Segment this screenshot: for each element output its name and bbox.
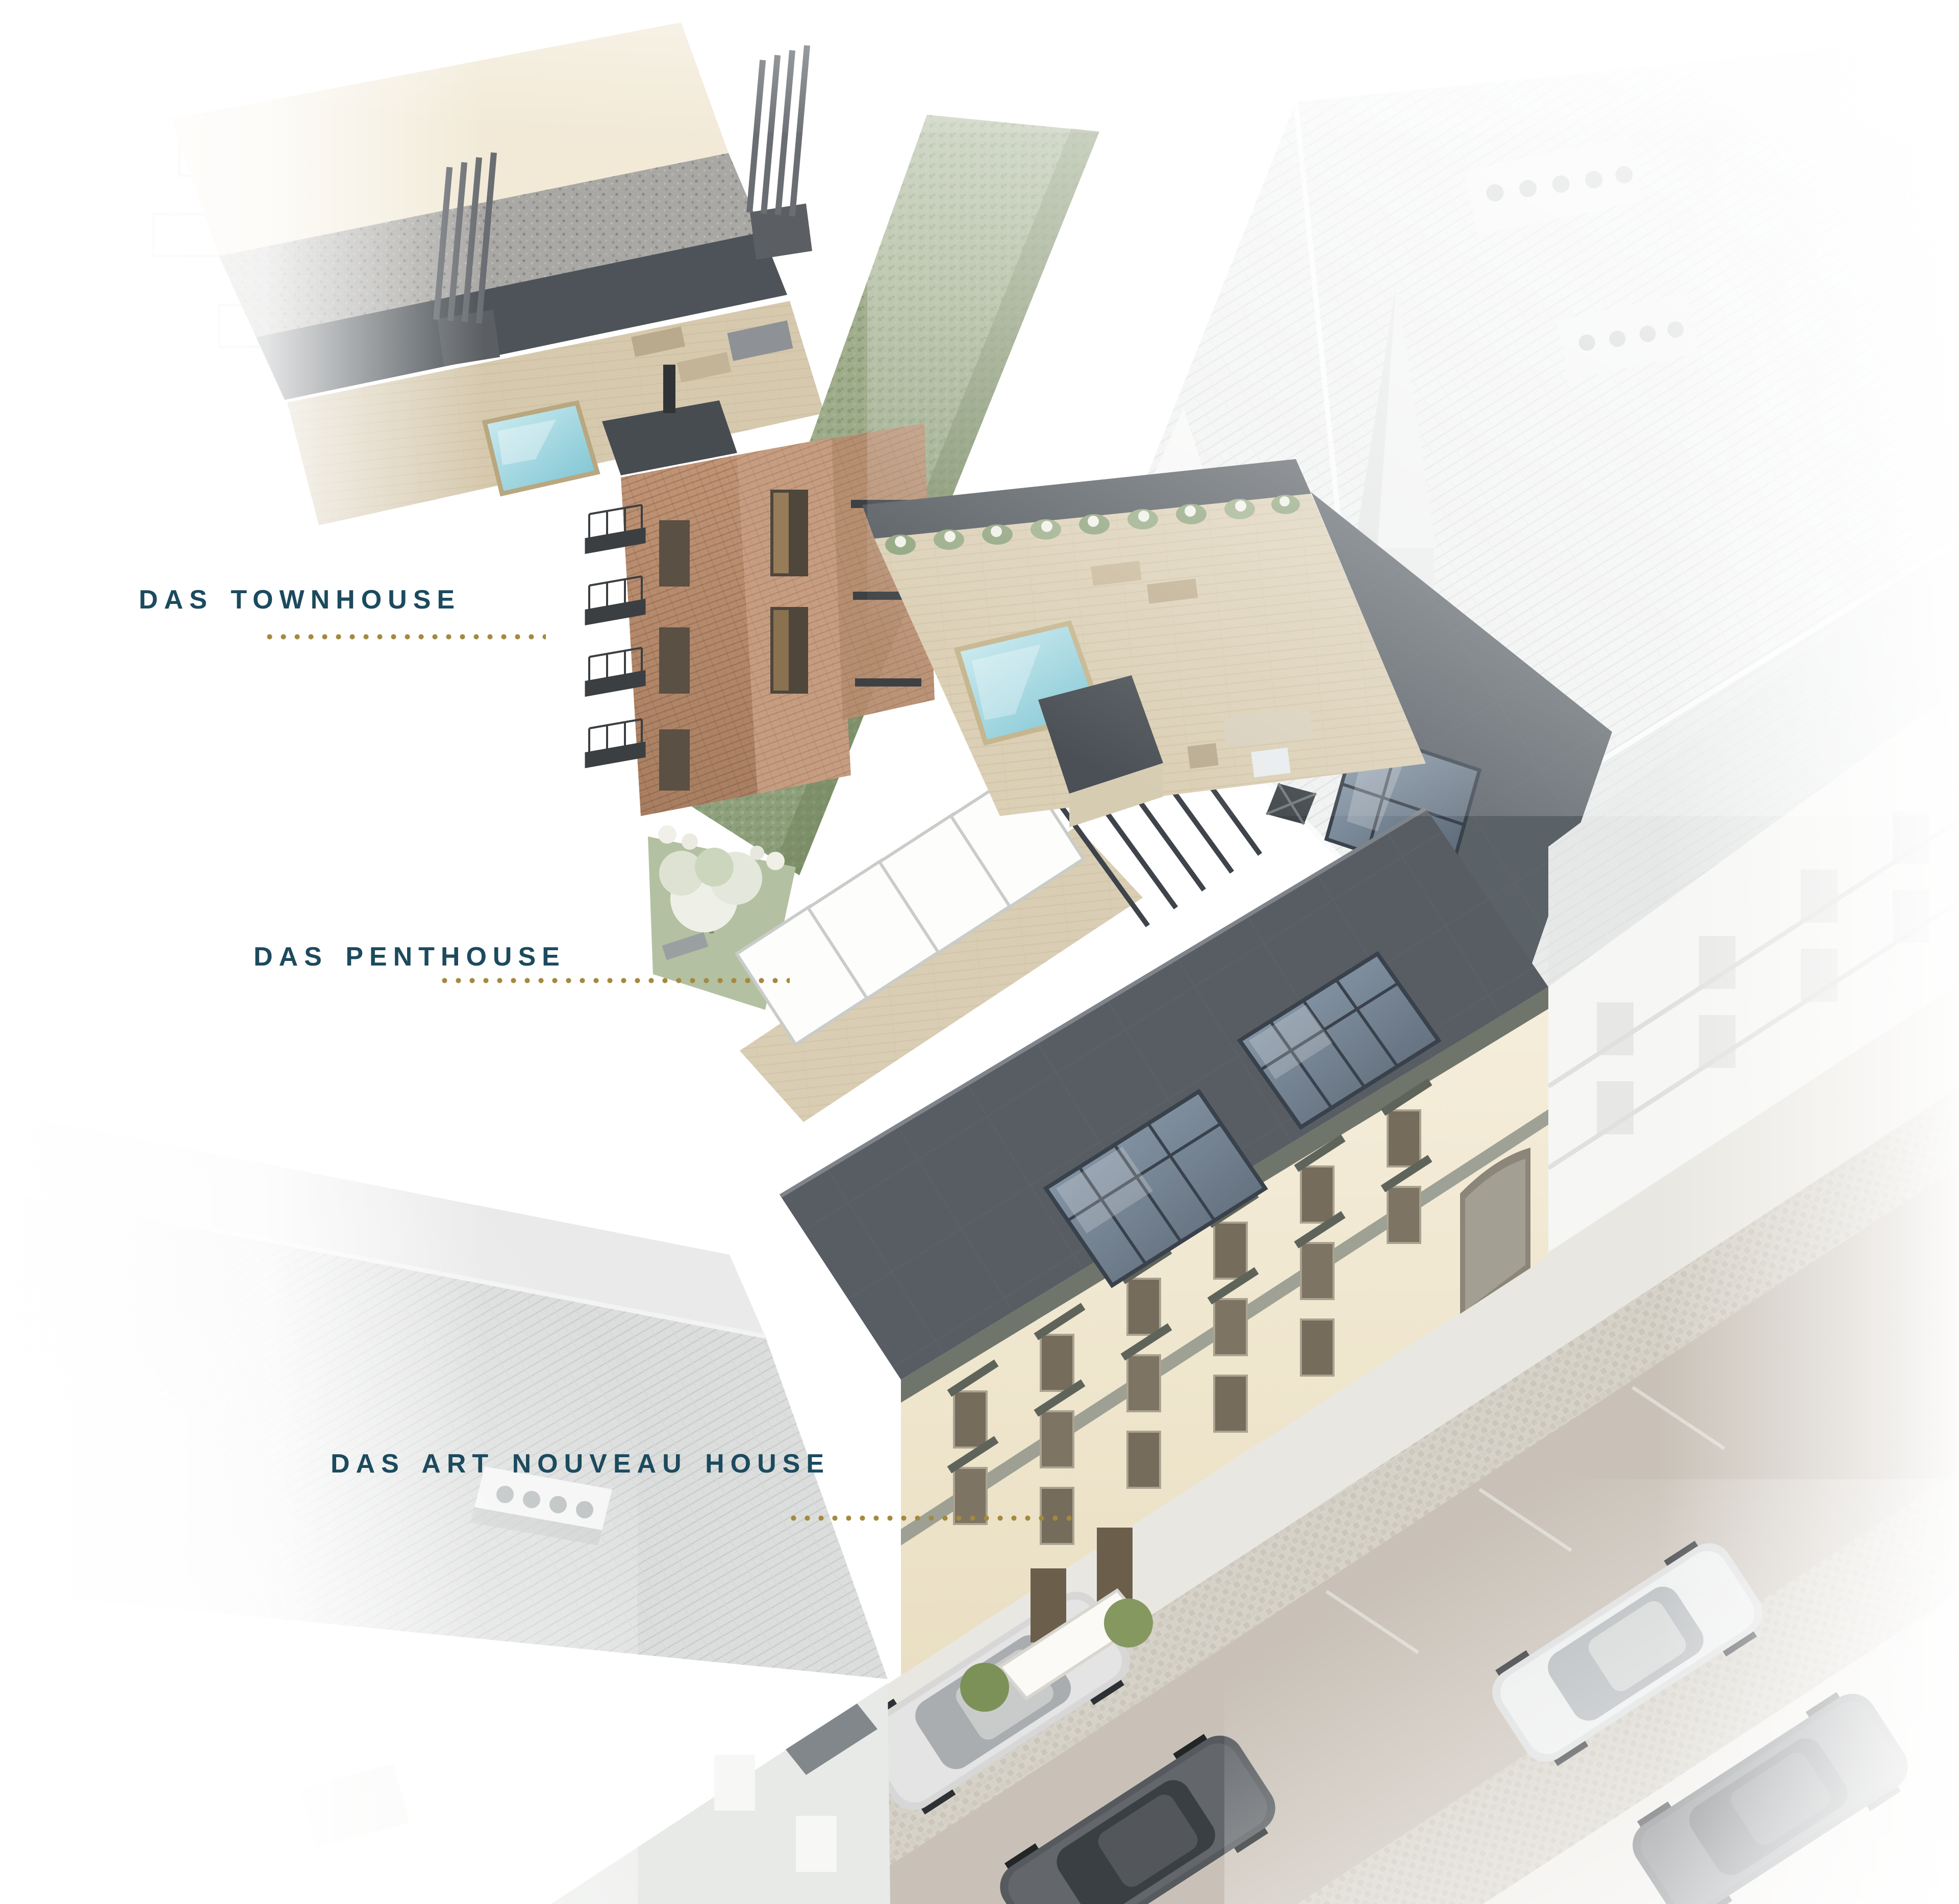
leader-dots-penthouse (438, 977, 790, 984)
entrance-bush (960, 1663, 1009, 1712)
flue-pipe (663, 365, 675, 413)
architectural-rendering: DAS TOWNHOUSE DAS PENTHOUSE DAS ART NOUV… (0, 0, 1959, 1904)
entrance-bush (1104, 1598, 1153, 1647)
label-das-art-nouveau-house: DAS ART NOUVEAU HOUSE (331, 1449, 830, 1479)
label-das-townhouse: DAS TOWNHOUSE (139, 585, 461, 615)
leader-dots-art-nouveau-house (787, 1515, 1076, 1521)
label-das-penthouse: DAS PENTHOUSE (254, 942, 566, 972)
leader-dots-townhouse (263, 633, 546, 640)
